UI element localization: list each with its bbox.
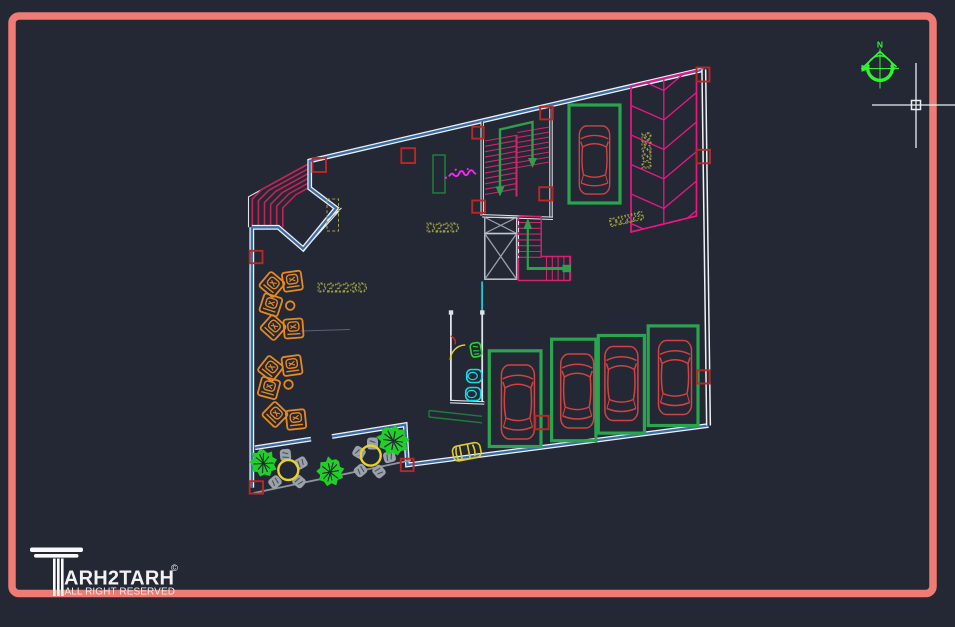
svg-text:N: N xyxy=(877,40,883,50)
svg-text:D2223D: D2223D xyxy=(317,280,368,295)
svg-text:©: © xyxy=(171,563,178,574)
svg-text:D22D: D22D xyxy=(426,220,459,235)
svg-text:D2255: D2255 xyxy=(640,132,654,169)
svg-text:ALL RIGHT RESERVED: ALL RIGHT RESERVED xyxy=(65,587,176,598)
